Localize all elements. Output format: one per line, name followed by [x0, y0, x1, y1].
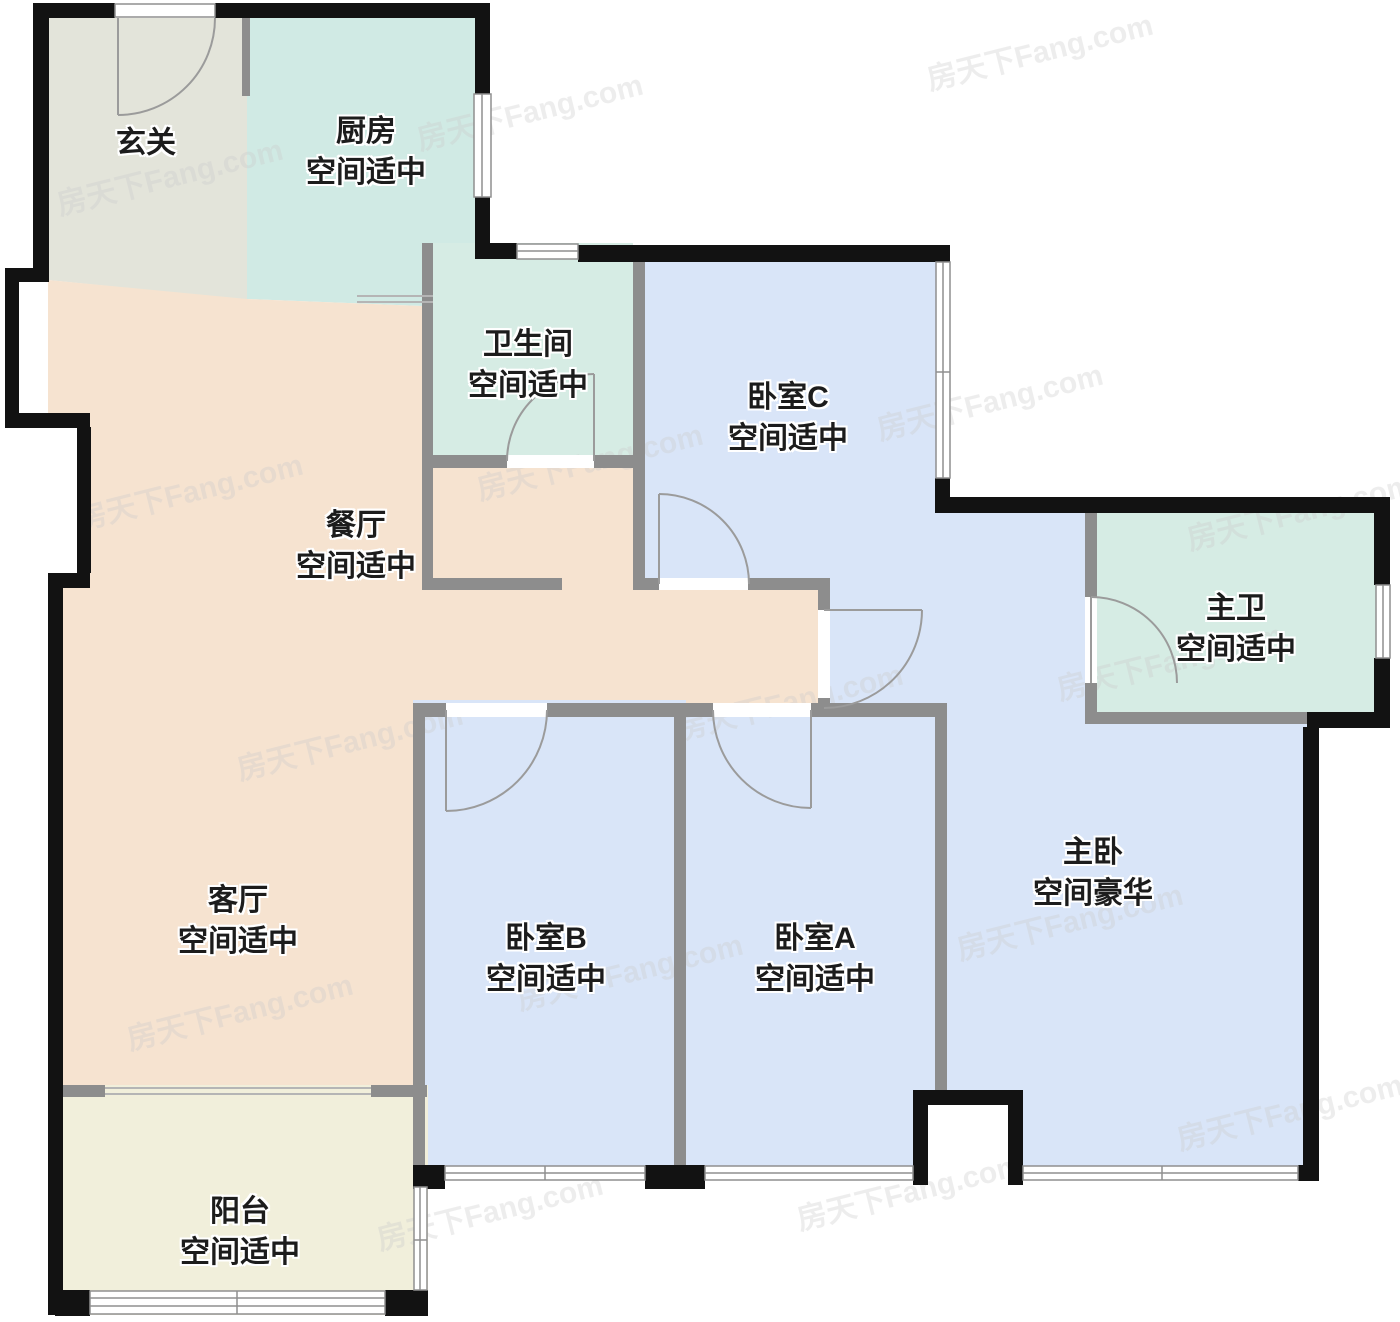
wall-balcony-corner-right: [385, 1290, 428, 1316]
room-fill-bedroom-b: [413, 700, 686, 1180]
wall-bedroom-a-top-right: [811, 703, 947, 717]
window-bedroom-b: [445, 1166, 645, 1180]
wall-master-bottom-corner: [1298, 1165, 1319, 1181]
window-entrance-opening: [115, 4, 215, 17]
window-bedroom-c: [936, 262, 950, 478]
floor-plan: 房天下Fang.com 房天下Fang.com 房天下Fang.com 房天下F…: [0, 0, 1400, 1322]
window-master-bedroom: [1023, 1166, 1298, 1180]
wall-notchL-step-bottom: [48, 573, 90, 588]
window-bathroom: [517, 244, 578, 259]
wall-notchL-outer: [5, 270, 19, 428]
room-fill-balcony: [48, 1085, 428, 1315]
window-balcony-bottom: [90, 1291, 385, 1314]
wall-bedroom-b-top-right: [547, 703, 686, 717]
wall-master-right: [1303, 727, 1319, 1180]
wall-hall-upper: [818, 588, 830, 610]
wall-bathroom-bottom-left: [422, 455, 507, 468]
window-balcony-right: [414, 1187, 427, 1290]
wall-bathroom-top: [475, 243, 517, 259]
wall-bedroom-c-left: [633, 247, 645, 590]
wall-bedroom-b-a: [674, 715, 686, 1165]
wall-entry-kitchen: [242, 18, 250, 96]
wall-balcony-divider-right: [371, 1085, 427, 1097]
wall-right-upper: [1374, 513, 1390, 585]
wall-bedroom-a-top-left: [686, 703, 715, 717]
wall-master-bath-bottom-black: [1307, 712, 1390, 728]
wall-corner-bedroom-b: [413, 1165, 445, 1189]
wall-notchL-inner: [77, 427, 91, 573]
window-kitchen: [474, 94, 491, 197]
wall-master-bath-left-upper: [1085, 512, 1097, 597]
wall-pier-bedrooms: [645, 1165, 705, 1189]
wall-notch-right: [1008, 1090, 1023, 1185]
wall-master-bath-top: [935, 497, 1390, 513]
exterior-notch-left: [18, 427, 77, 573]
watermark-text: 房天下Fang.com: [924, 9, 1157, 97]
wall-kitchen-right-lower: [475, 197, 490, 247]
room-fill-bathroom: [422, 243, 633, 468]
wall-bedroom-c-top: [578, 245, 950, 262]
wall-bedroom-c-bottom-left: [633, 578, 659, 590]
wall-master-bath-bottom: [1085, 712, 1310, 724]
wall-bathroom-bottom-right: [594, 455, 633, 468]
wall-top-kitchen: [215, 3, 490, 18]
wall-left-upper: [33, 3, 49, 281]
wall-bathroom-nook: [422, 578, 562, 590]
floor-plan-canvas: 房天下Fang.com 房天下Fang.com 房天下Fang.com 房天下F…: [0, 0, 1400, 1322]
wall-notch-top: [913, 1090, 1023, 1105]
wall-kitchen-right-upper: [475, 18, 490, 94]
wall-bedroom-a-master: [935, 717, 947, 1092]
wall-left-lower: [48, 587, 63, 1315]
window-bedroom-a: [705, 1166, 913, 1180]
wall-notch-left: [913, 1090, 928, 1185]
wall-bedroom-c-bottom-right: [748, 578, 830, 590]
window-master-bathroom: [1376, 585, 1390, 658]
